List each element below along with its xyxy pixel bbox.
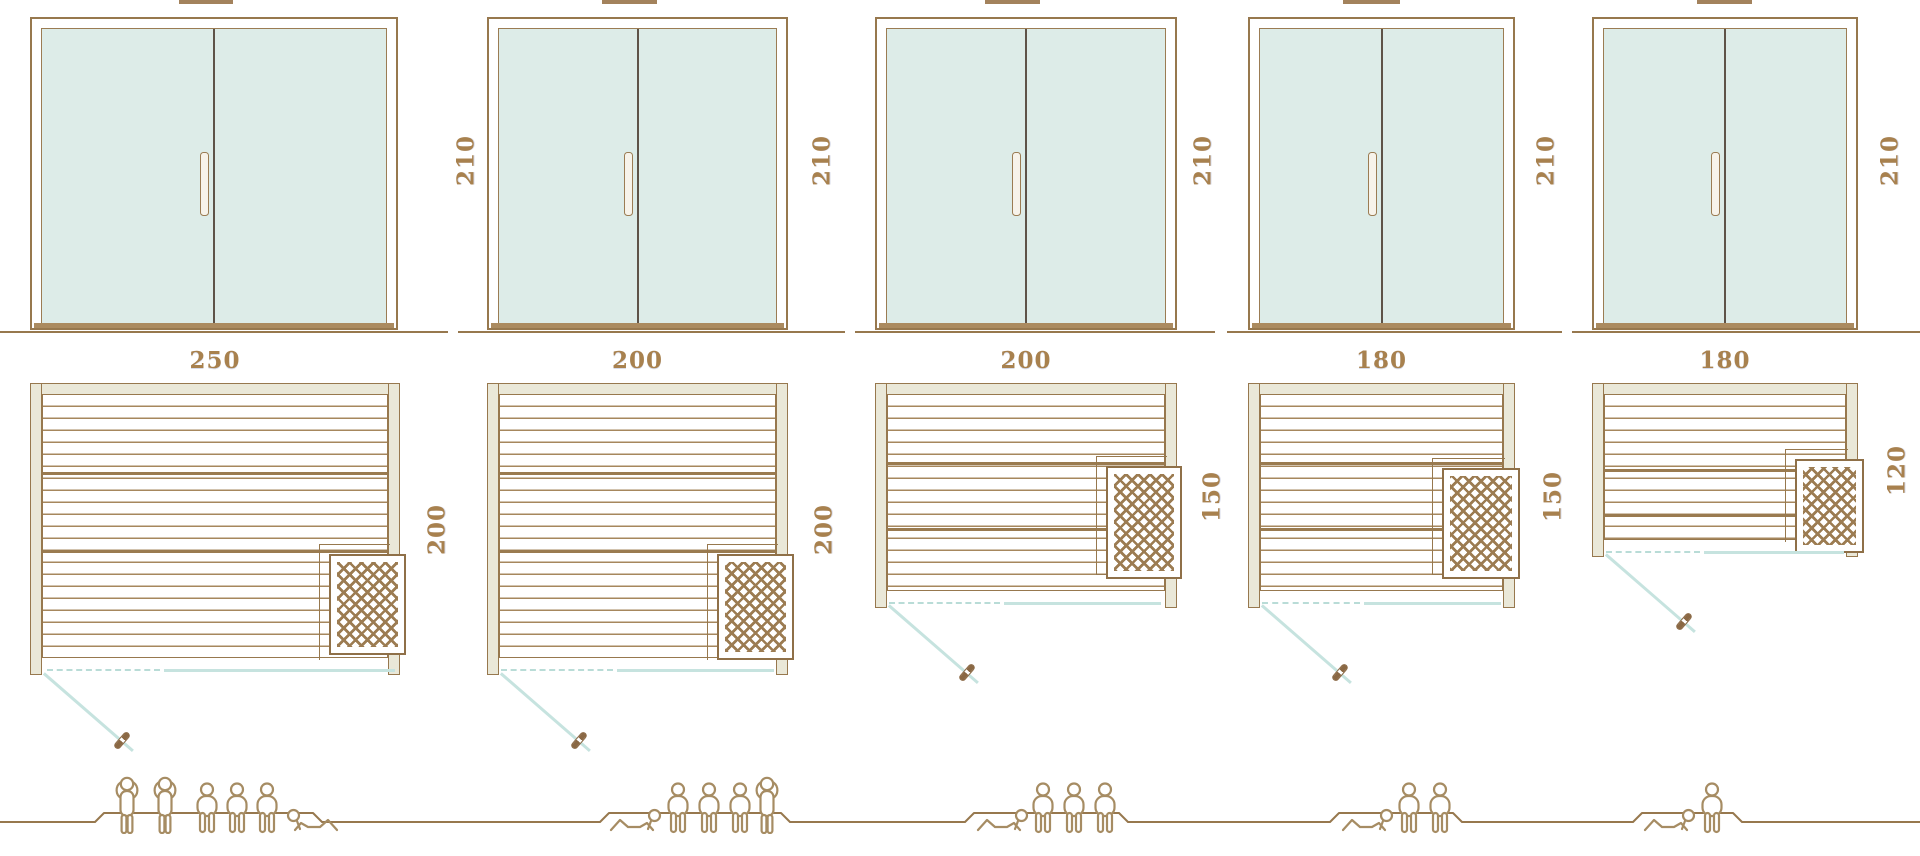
sauna-5-plan-wall-opening-line — [1704, 551, 1844, 554]
sauna-2-door-height-label: 210 — [809, 101, 836, 221]
sauna-2-door-center-stile — [637, 29, 639, 323]
sauna-1-door-ground-line — [0, 331, 448, 333]
sauna-4-door-threshold — [1252, 323, 1511, 328]
sauna-4-door-height-label: 210 — [1533, 101, 1560, 221]
sauna-4-sauna-heater-lattice-icon — [1442, 468, 1520, 579]
sauna-1-sauna-heater-lattice-icon — [329, 554, 406, 655]
sitting-person-icon — [1400, 784, 1419, 833]
sauna-5-plan-width-label: 180 — [1665, 347, 1785, 374]
sitting-person-icon — [258, 784, 277, 833]
sauna-3-plan-floor-planks — [887, 394, 1165, 591]
sauna-4-door-glass-panels — [1259, 28, 1504, 324]
sauna-1-door-threshold — [34, 323, 394, 328]
sauna-4-plan-door-opening-dashed — [1262, 602, 1360, 604]
sauna-4-door-handle-icon — [1368, 152, 1377, 216]
capacity-group-1-persons-6 — [117, 778, 337, 833]
sitting-person-icon — [1096, 784, 1115, 833]
sauna-2-sauna-heater-lattice-icon — [717, 554, 794, 660]
sauna-1-roof-bar — [179, 0, 233, 4]
sauna-2-plan-left-wall — [487, 383, 499, 675]
sauna-3-door-elevation — [875, 17, 1177, 330]
sauna-3-heater-lattice-pattern — [1114, 474, 1174, 571]
sauna-5-plan-door-opening-dashed — [1606, 551, 1700, 553]
sauna-5-door-glass-panels — [1603, 28, 1847, 324]
sauna-1-plan-bench-edge-line-1 — [43, 472, 387, 475]
sauna-2-plan-bench-edge-line-1 — [500, 472, 775, 475]
sauna-3-sauna-heater-lattice-icon — [1106, 466, 1182, 579]
sauna-1-plan-floor-planks — [42, 394, 388, 658]
sauna-dimension-diagram: 2102502002102002002102001502101801502101… — [0, 0, 1920, 856]
sauna-2-door-glass-panels — [498, 28, 777, 324]
sauna-5-plan-floor-planks — [1604, 394, 1846, 540]
sauna-1-door-center-stile — [213, 29, 215, 323]
sauna-1-plan-width-label: 250 — [155, 347, 275, 374]
sauna-4-plan-depth-label: 150 — [1540, 436, 1567, 556]
sauna-2-roof-bar — [602, 0, 657, 4]
capacity-groups — [117, 778, 1722, 833]
standing-person-icon — [757, 778, 778, 833]
capacity-group-2-persons-5 — [611, 778, 777, 833]
sitting-person-icon — [731, 784, 750, 833]
capacity-group-5-persons-2 — [1645, 784, 1722, 833]
sauna-3-roof-bar — [985, 0, 1040, 4]
sauna-1-heater-lattice-pattern — [337, 562, 398, 647]
sitting-person-icon — [1034, 784, 1053, 833]
sauna-2-plan-floor-planks — [499, 394, 776, 658]
sauna-4-door-center-stile — [1381, 29, 1383, 323]
sitting-person-icon — [228, 784, 247, 833]
sauna-3-door-ground-line — [855, 331, 1215, 333]
sauna-1-plan-depth-label: 200 — [424, 470, 451, 590]
sauna-5-door-center-stile — [1724, 29, 1726, 323]
sauna-3-door-handle-icon — [1012, 152, 1021, 216]
sauna-5-roof-bar — [1697, 0, 1752, 4]
sauna-5-plan-depth-label: 120 — [1884, 411, 1911, 531]
sauna-3-door-glass-panels — [886, 28, 1166, 324]
sitting-person-icon — [700, 784, 719, 833]
sauna-3-plan-door-opening-dashed — [889, 602, 1000, 604]
sauna-2-heater-lattice-pattern — [725, 562, 786, 652]
standing-person-icon — [155, 778, 176, 833]
sauna-4-roof-bar — [1343, 0, 1400, 4]
sauna-5-heater-lattice-pattern — [1803, 467, 1856, 545]
sauna-1-door-glass-panels — [41, 28, 387, 324]
sitting-person-icon — [198, 784, 217, 833]
sauna-3-plan-depth-label: 150 — [1199, 436, 1226, 556]
sauna-4-plan-floor-planks — [1260, 394, 1503, 591]
sitting-person-icon — [669, 784, 688, 833]
sauna-1-door-handle-icon — [200, 152, 209, 216]
sauna-2-plan-wall-opening-line — [617, 669, 774, 672]
capacity-group-3-persons-4 — [978, 784, 1115, 833]
sauna-4-heater-lattice-pattern — [1450, 476, 1512, 571]
capacity-group-4-persons-3 — [1343, 784, 1450, 833]
sauna-5-door-height-label: 210 — [1877, 101, 1904, 221]
sauna-3-door-center-stile — [1025, 29, 1027, 323]
sauna-2-door-elevation — [487, 17, 788, 330]
sauna-5-door-threshold — [1596, 323, 1854, 328]
sauna-5-plan-left-wall — [1592, 383, 1604, 557]
sauna-1-plan-left-wall — [30, 383, 42, 675]
sauna-4-door-ground-line — [1227, 331, 1562, 333]
standing-person-icon — [117, 778, 138, 833]
sauna-2-door-threshold — [491, 323, 784, 328]
sauna-5-sauna-heater-lattice-icon — [1795, 459, 1864, 553]
sauna-4-plan-left-wall — [1248, 383, 1260, 608]
sauna-2-plan-door-opening-dashed — [501, 669, 613, 671]
capacity-figures-layer — [0, 770, 1920, 856]
sauna-1-plan-door-opening-dashed — [47, 669, 160, 671]
sauna-3-plan-wall-opening-line — [1004, 602, 1161, 605]
sauna-2-door-handle-icon — [624, 152, 633, 216]
sauna-5-door-elevation — [1592, 17, 1858, 330]
sauna-4-plan-wall-opening-line — [1364, 602, 1501, 605]
sauna-2-door-ground-line — [458, 331, 845, 333]
sitting-person-icon — [1703, 784, 1722, 833]
sauna-3-plan-width-label: 200 — [966, 347, 1086, 374]
sitting-person-icon — [1065, 784, 1084, 833]
sauna-3-plan-left-wall — [875, 383, 887, 608]
sauna-1-door-height-label: 210 — [453, 101, 480, 221]
sauna-1-door-elevation — [30, 17, 398, 330]
sauna-2-plan-width-label: 200 — [578, 347, 698, 374]
sauna-2-plan-depth-label: 200 — [811, 470, 838, 590]
sauna-4-door-elevation — [1248, 17, 1515, 330]
sitting-person-icon — [1431, 784, 1450, 833]
sauna-3-door-threshold — [879, 323, 1173, 328]
sauna-1-plan-wall-opening-line — [164, 669, 395, 672]
sauna-5-door-handle-icon — [1711, 152, 1720, 216]
sauna-3-door-height-label: 210 — [1190, 101, 1217, 221]
sauna-4-plan-width-label: 180 — [1322, 347, 1442, 374]
sauna-5-door-ground-line — [1572, 331, 1920, 333]
